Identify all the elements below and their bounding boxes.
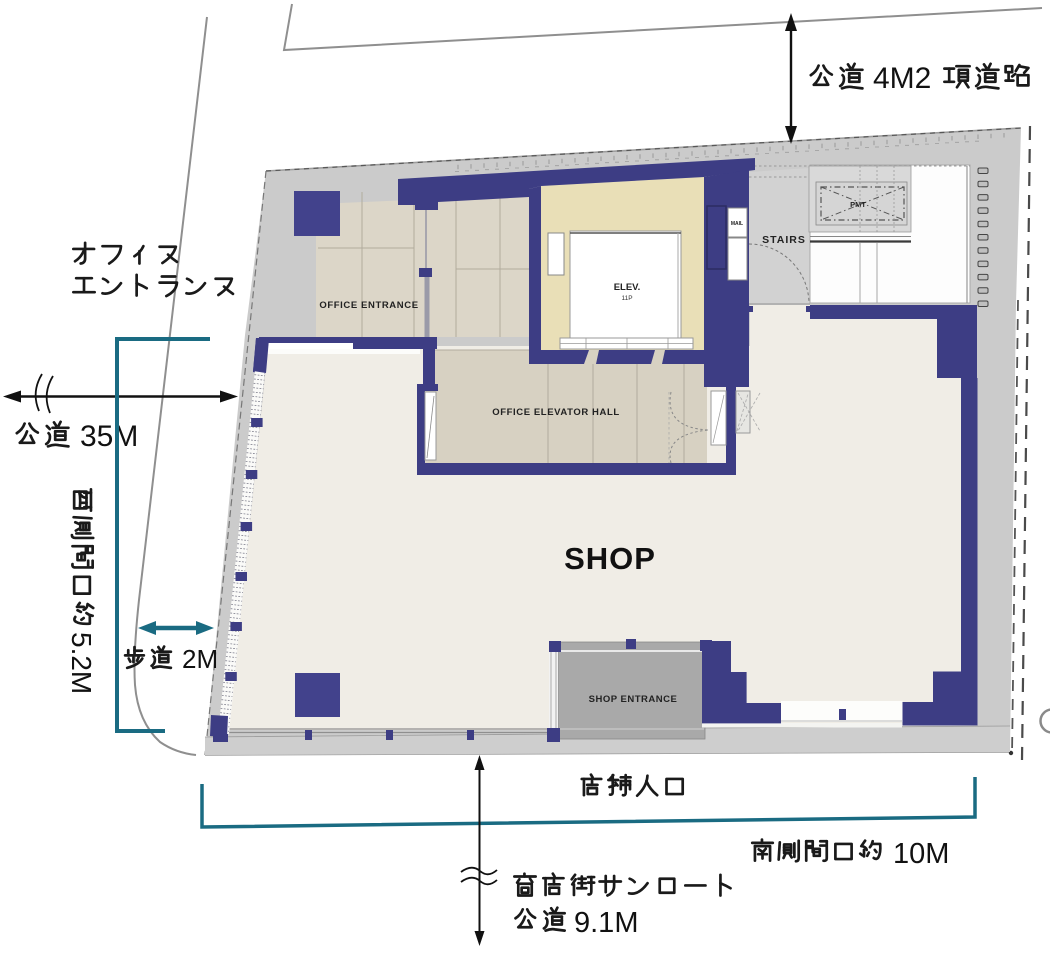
svg-text:35M: 35M — [80, 420, 138, 453]
svg-text:MAIL: MAIL — [731, 221, 743, 227]
svg-text:ELEV.: ELEV. — [614, 282, 641, 293]
svg-text:PMT: PMT — [850, 200, 866, 209]
svg-text:2M: 2M — [182, 644, 218, 674]
svg-text:SHOP ENTRANCE: SHOP ENTRANCE — [589, 694, 678, 705]
svg-text:10M: 10M — [893, 838, 949, 870]
svg-text:4M2: 4M2 — [873, 62, 931, 95]
svg-text:STAIRS: STAIRS — [762, 234, 806, 246]
svg-text:11P: 11P — [621, 295, 632, 302]
svg-text:OFFICE ELEVATOR HALL: OFFICE ELEVATOR HALL — [492, 407, 620, 418]
svg-text:OFFICE ENTRANCE: OFFICE ENTRANCE — [319, 300, 418, 311]
svg-text:5.2M: 5.2M — [66, 632, 97, 694]
svg-text:9.1M: 9.1M — [574, 907, 638, 939]
svg-text:SHOP: SHOP — [564, 541, 656, 576]
